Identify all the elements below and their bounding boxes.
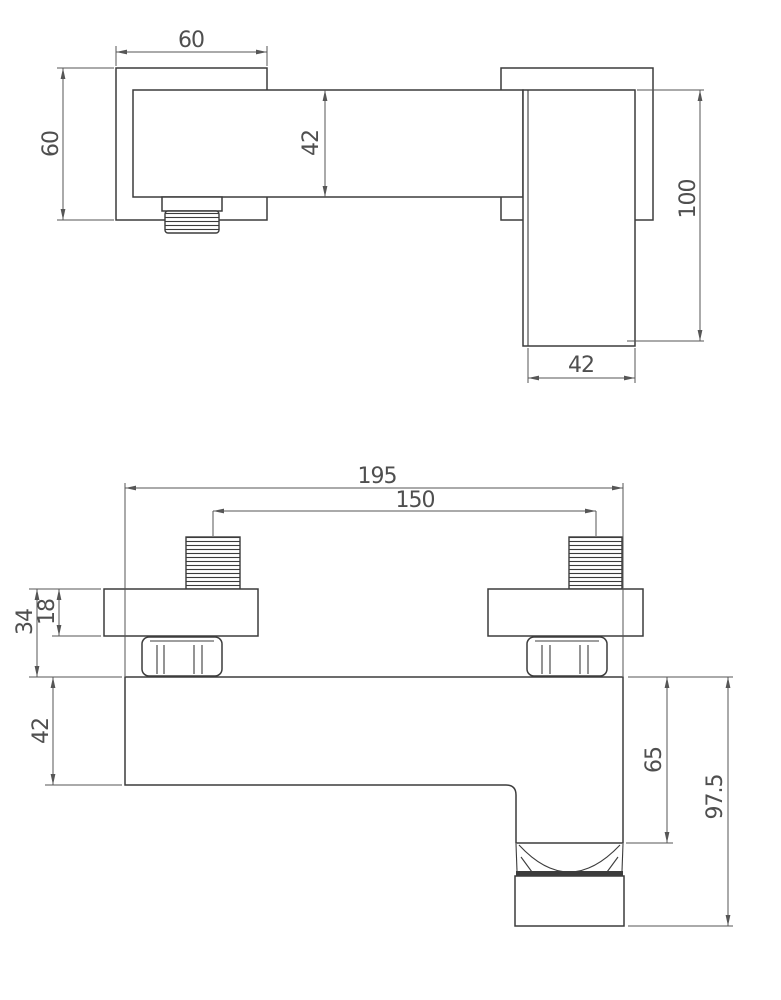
spout-outlet: [515, 876, 624, 926]
spout-right-wall: [622, 844, 623, 871]
front-mixer-body: [125, 677, 623, 843]
front-left-inlet-thread: [186, 537, 240, 589]
front-right-wall-plate: [488, 589, 643, 636]
front-left-nut: [142, 637, 222, 676]
dim-plate-width: 60: [116, 28, 267, 66]
side-outlet-neck: [162, 197, 222, 211]
dim-body-height-label: 42: [29, 718, 54, 744]
dim-body-height: 42: [29, 677, 122, 785]
dim-overall-height: 97.5: [628, 677, 733, 926]
dim-overall-width-label: 195: [358, 464, 397, 489]
dim-handle-width-label: 42: [568, 353, 594, 378]
dim-handle-height: 100: [627, 90, 704, 341]
side-body-bar: [133, 90, 523, 197]
spout-bowl-curve: [519, 845, 620, 872]
side-view: 60 60 42 100: [39, 28, 704, 383]
side-outlet-thread: [165, 211, 219, 233]
drawing-page: 60 60 42 100: [0, 0, 781, 1000]
dim-inlet-spacing-label: 150: [396, 488, 435, 513]
spout-right-bevel: [607, 857, 618, 872]
front-left-wall-plate: [104, 589, 258, 636]
front-view: 195 150 34 18: [13, 464, 733, 926]
spout-left-bevel: [521, 857, 532, 872]
dim-plate-width-label: 60: [178, 28, 204, 53]
dim-handle-height-label: 100: [676, 180, 701, 219]
front-right-inlet-thread: [569, 537, 622, 589]
front-spout: [515, 844, 624, 926]
side-handle-column: [523, 90, 635, 346]
dim-inlet-spacing: 150: [213, 488, 596, 536]
technical-drawing-canvas: 60 60 42 100: [0, 0, 781, 1000]
dim-plate-height: 60: [39, 68, 114, 220]
dim-plate-thickness: 18: [35, 589, 101, 636]
front-right-nut: [527, 637, 607, 676]
dim-plate-thickness-label: 18: [35, 599, 60, 625]
dim-handle-width: 42: [528, 348, 635, 383]
dim-spout-offset-label: 65: [642, 747, 667, 773]
dim-overall-height-label: 97.5: [703, 775, 728, 820]
dim-plate-height-label: 60: [39, 131, 64, 157]
dim-bar-height-label: 42: [299, 130, 324, 156]
spout-left-wall: [516, 844, 517, 871]
